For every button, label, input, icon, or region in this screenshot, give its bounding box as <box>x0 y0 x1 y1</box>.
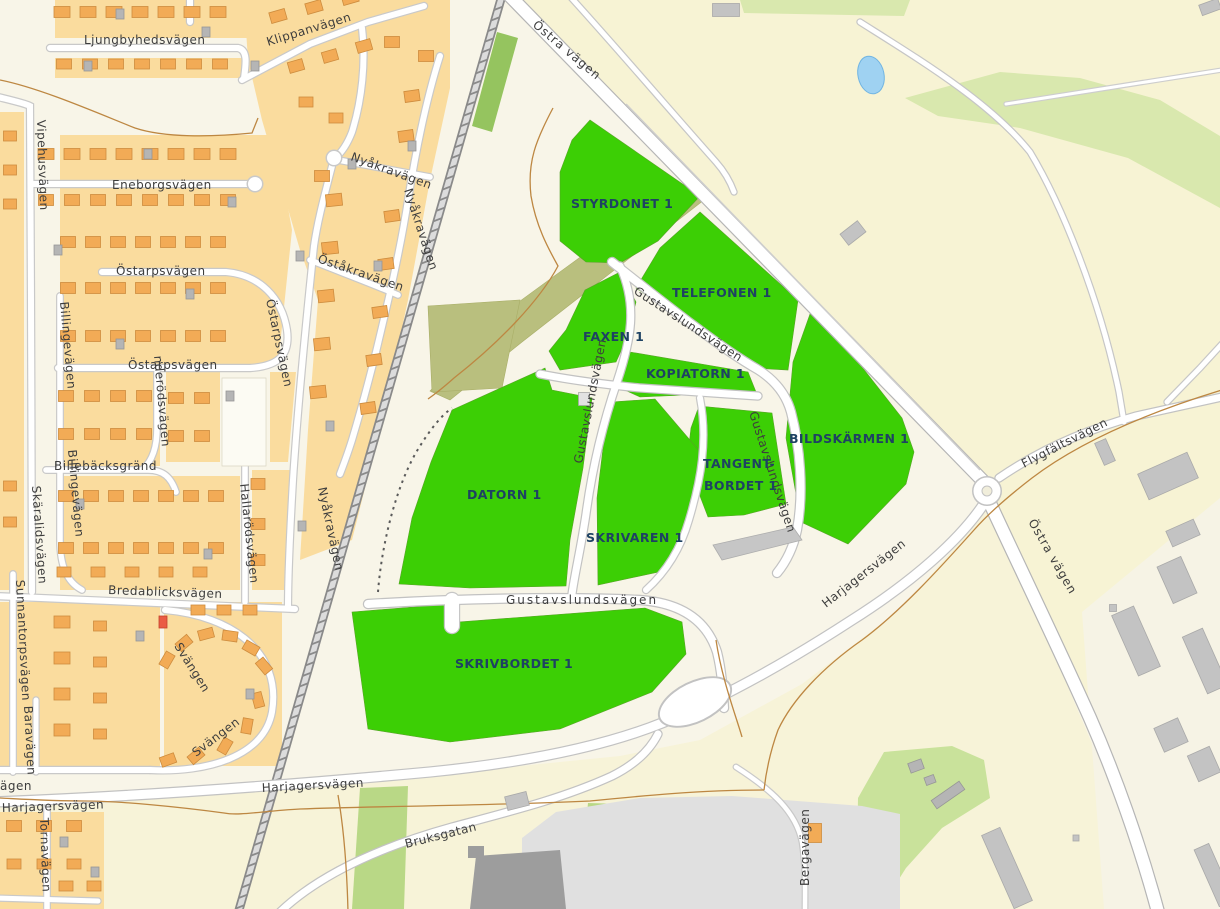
building <box>85 429 100 440</box>
building <box>4 517 17 527</box>
building <box>159 543 174 554</box>
building <box>109 543 124 554</box>
building <box>210 7 226 18</box>
industrial-building <box>1073 835 1079 841</box>
building <box>86 237 101 248</box>
building <box>159 491 174 502</box>
building <box>384 210 400 223</box>
building <box>315 171 330 182</box>
building <box>168 149 184 160</box>
building <box>309 385 326 399</box>
building <box>136 331 151 342</box>
building <box>251 479 265 490</box>
building <box>211 331 226 342</box>
building <box>186 289 194 299</box>
building <box>372 306 388 319</box>
building <box>159 616 167 628</box>
street-label-eneborgsvagen: Eneborgsvägen <box>112 178 212 192</box>
building <box>137 391 152 402</box>
building <box>136 283 151 294</box>
building <box>161 59 176 69</box>
building <box>7 859 21 869</box>
map-stage: Ljungbyhedsvägen Klippanvägen Vipehusväg… <box>0 0 1220 909</box>
building <box>161 331 176 342</box>
street-label-ostarpsvagen-2: Östarpsvägen <box>128 356 218 372</box>
building <box>204 549 212 559</box>
building <box>195 393 210 404</box>
building <box>54 7 70 18</box>
building <box>116 9 124 19</box>
building <box>184 7 200 18</box>
factory-building <box>468 846 484 858</box>
building <box>195 195 210 206</box>
building <box>4 131 17 141</box>
building <box>135 59 150 69</box>
street-label-gustavslundsvagen-3: Gustavslundsvägen <box>506 593 658 607</box>
street-label-billebacksgrand: Billebäcksgränd <box>54 459 157 473</box>
building <box>299 97 313 107</box>
building <box>313 337 330 351</box>
industrial-building <box>713 4 740 17</box>
plot-label-kopiatorn: KOPIATORN 1 <box>646 366 745 381</box>
culdesac <box>248 177 262 191</box>
building <box>186 331 201 342</box>
building <box>132 7 148 18</box>
building <box>111 283 126 294</box>
building <box>211 237 226 248</box>
building <box>186 237 201 248</box>
building <box>184 491 199 502</box>
building <box>246 689 254 699</box>
building <box>366 354 382 367</box>
block <box>166 372 220 462</box>
building <box>54 245 62 255</box>
building <box>125 567 139 577</box>
building <box>169 393 184 404</box>
plot-label-skrivbordet: SKRIVBORDET 1 <box>455 656 573 671</box>
building <box>67 821 82 832</box>
building <box>117 195 132 206</box>
plot-label-bildskarmen: BILDSKÄRMEN 1 <box>789 431 909 446</box>
building <box>94 621 107 631</box>
building <box>360 402 376 415</box>
building <box>94 693 107 703</box>
building <box>317 289 334 303</box>
building <box>59 429 74 440</box>
building <box>325 193 342 207</box>
building <box>408 141 416 151</box>
building <box>84 491 99 502</box>
plot-label-tangentbordet-line2: BORDET 1 <box>704 478 777 493</box>
building <box>111 429 126 440</box>
building <box>398 130 414 143</box>
building <box>84 543 99 554</box>
building <box>109 59 124 69</box>
street-label-fragment-agen: ägen <box>0 779 32 793</box>
building <box>116 339 124 349</box>
building <box>4 199 17 209</box>
building <box>91 567 105 577</box>
building <box>194 149 210 160</box>
building <box>228 197 236 207</box>
street-label-bergavagen: Bergavägen <box>798 809 812 886</box>
building <box>296 251 304 261</box>
plot-label-skrivaren: SKRIVAREN 1 <box>586 530 684 545</box>
plot-label-telefonen: TELEFONEN 1 <box>672 285 772 300</box>
building <box>404 90 420 103</box>
building <box>111 391 126 402</box>
building <box>329 113 343 123</box>
building <box>161 283 176 294</box>
building <box>116 149 132 160</box>
street-label-ljungbyhedsvagen: Ljungbyhedsvägen <box>84 33 205 47</box>
roundabout-island <box>982 486 992 496</box>
building <box>111 237 126 248</box>
building <box>298 521 306 531</box>
building <box>143 195 158 206</box>
building <box>213 59 228 69</box>
building <box>169 195 184 206</box>
building <box>85 391 100 402</box>
industrial-ground <box>522 796 900 909</box>
building <box>251 61 259 71</box>
building <box>54 652 70 664</box>
building <box>220 149 236 160</box>
building <box>241 718 253 735</box>
plot-label-tangentbordet-line1: TANGENT- <box>703 456 775 471</box>
building <box>161 237 176 248</box>
building <box>91 867 99 877</box>
building <box>326 421 334 431</box>
building <box>217 605 231 615</box>
building <box>65 195 80 206</box>
building <box>54 724 70 736</box>
building <box>59 543 74 554</box>
building <box>60 837 68 847</box>
building <box>191 605 205 615</box>
building <box>144 149 152 159</box>
plot-label-styrdonet: STYRDONET 1 <box>571 196 673 211</box>
building <box>54 616 70 628</box>
building <box>86 283 101 294</box>
building <box>54 688 70 700</box>
building <box>90 149 106 160</box>
building <box>385 37 400 48</box>
building <box>243 605 257 615</box>
building <box>57 59 72 69</box>
building <box>136 237 151 248</box>
site-map: Ljungbyhedsvägen Klippanvägen Vipehusväg… <box>0 0 1220 909</box>
building <box>94 729 107 739</box>
building <box>86 331 101 342</box>
building <box>59 391 74 402</box>
building <box>4 481 17 491</box>
building <box>193 567 207 577</box>
building <box>87 881 101 891</box>
culdesac <box>327 151 341 165</box>
factory-building <box>470 850 566 909</box>
building <box>136 631 144 641</box>
building <box>134 491 149 502</box>
building <box>419 51 434 62</box>
building <box>80 7 96 18</box>
building <box>158 7 174 18</box>
building <box>226 391 234 401</box>
building <box>94 657 107 667</box>
building <box>195 431 210 442</box>
building <box>211 283 226 294</box>
building <box>7 821 22 832</box>
street-label-tornavagen: Tornavägen <box>37 817 54 893</box>
building <box>61 283 76 294</box>
road-torna-horiz <box>0 898 98 901</box>
building <box>209 491 224 502</box>
building <box>222 630 238 642</box>
building <box>137 429 152 440</box>
building <box>84 61 92 71</box>
building <box>134 543 149 554</box>
building <box>109 491 124 502</box>
building <box>184 543 199 554</box>
building <box>159 567 173 577</box>
building <box>59 881 73 891</box>
building <box>187 59 202 69</box>
plot-label-faxen: FAXEN 1 <box>583 329 644 344</box>
industrial-building <box>1110 605 1117 612</box>
building <box>61 237 76 248</box>
building <box>57 567 71 577</box>
building <box>64 149 80 160</box>
building <box>4 165 17 175</box>
plot-label-datorn: DATORN 1 <box>467 487 542 502</box>
street-label-ostarpsvagen-1: Östarpsvägen <box>116 262 206 278</box>
building <box>67 859 81 869</box>
building <box>91 195 106 206</box>
